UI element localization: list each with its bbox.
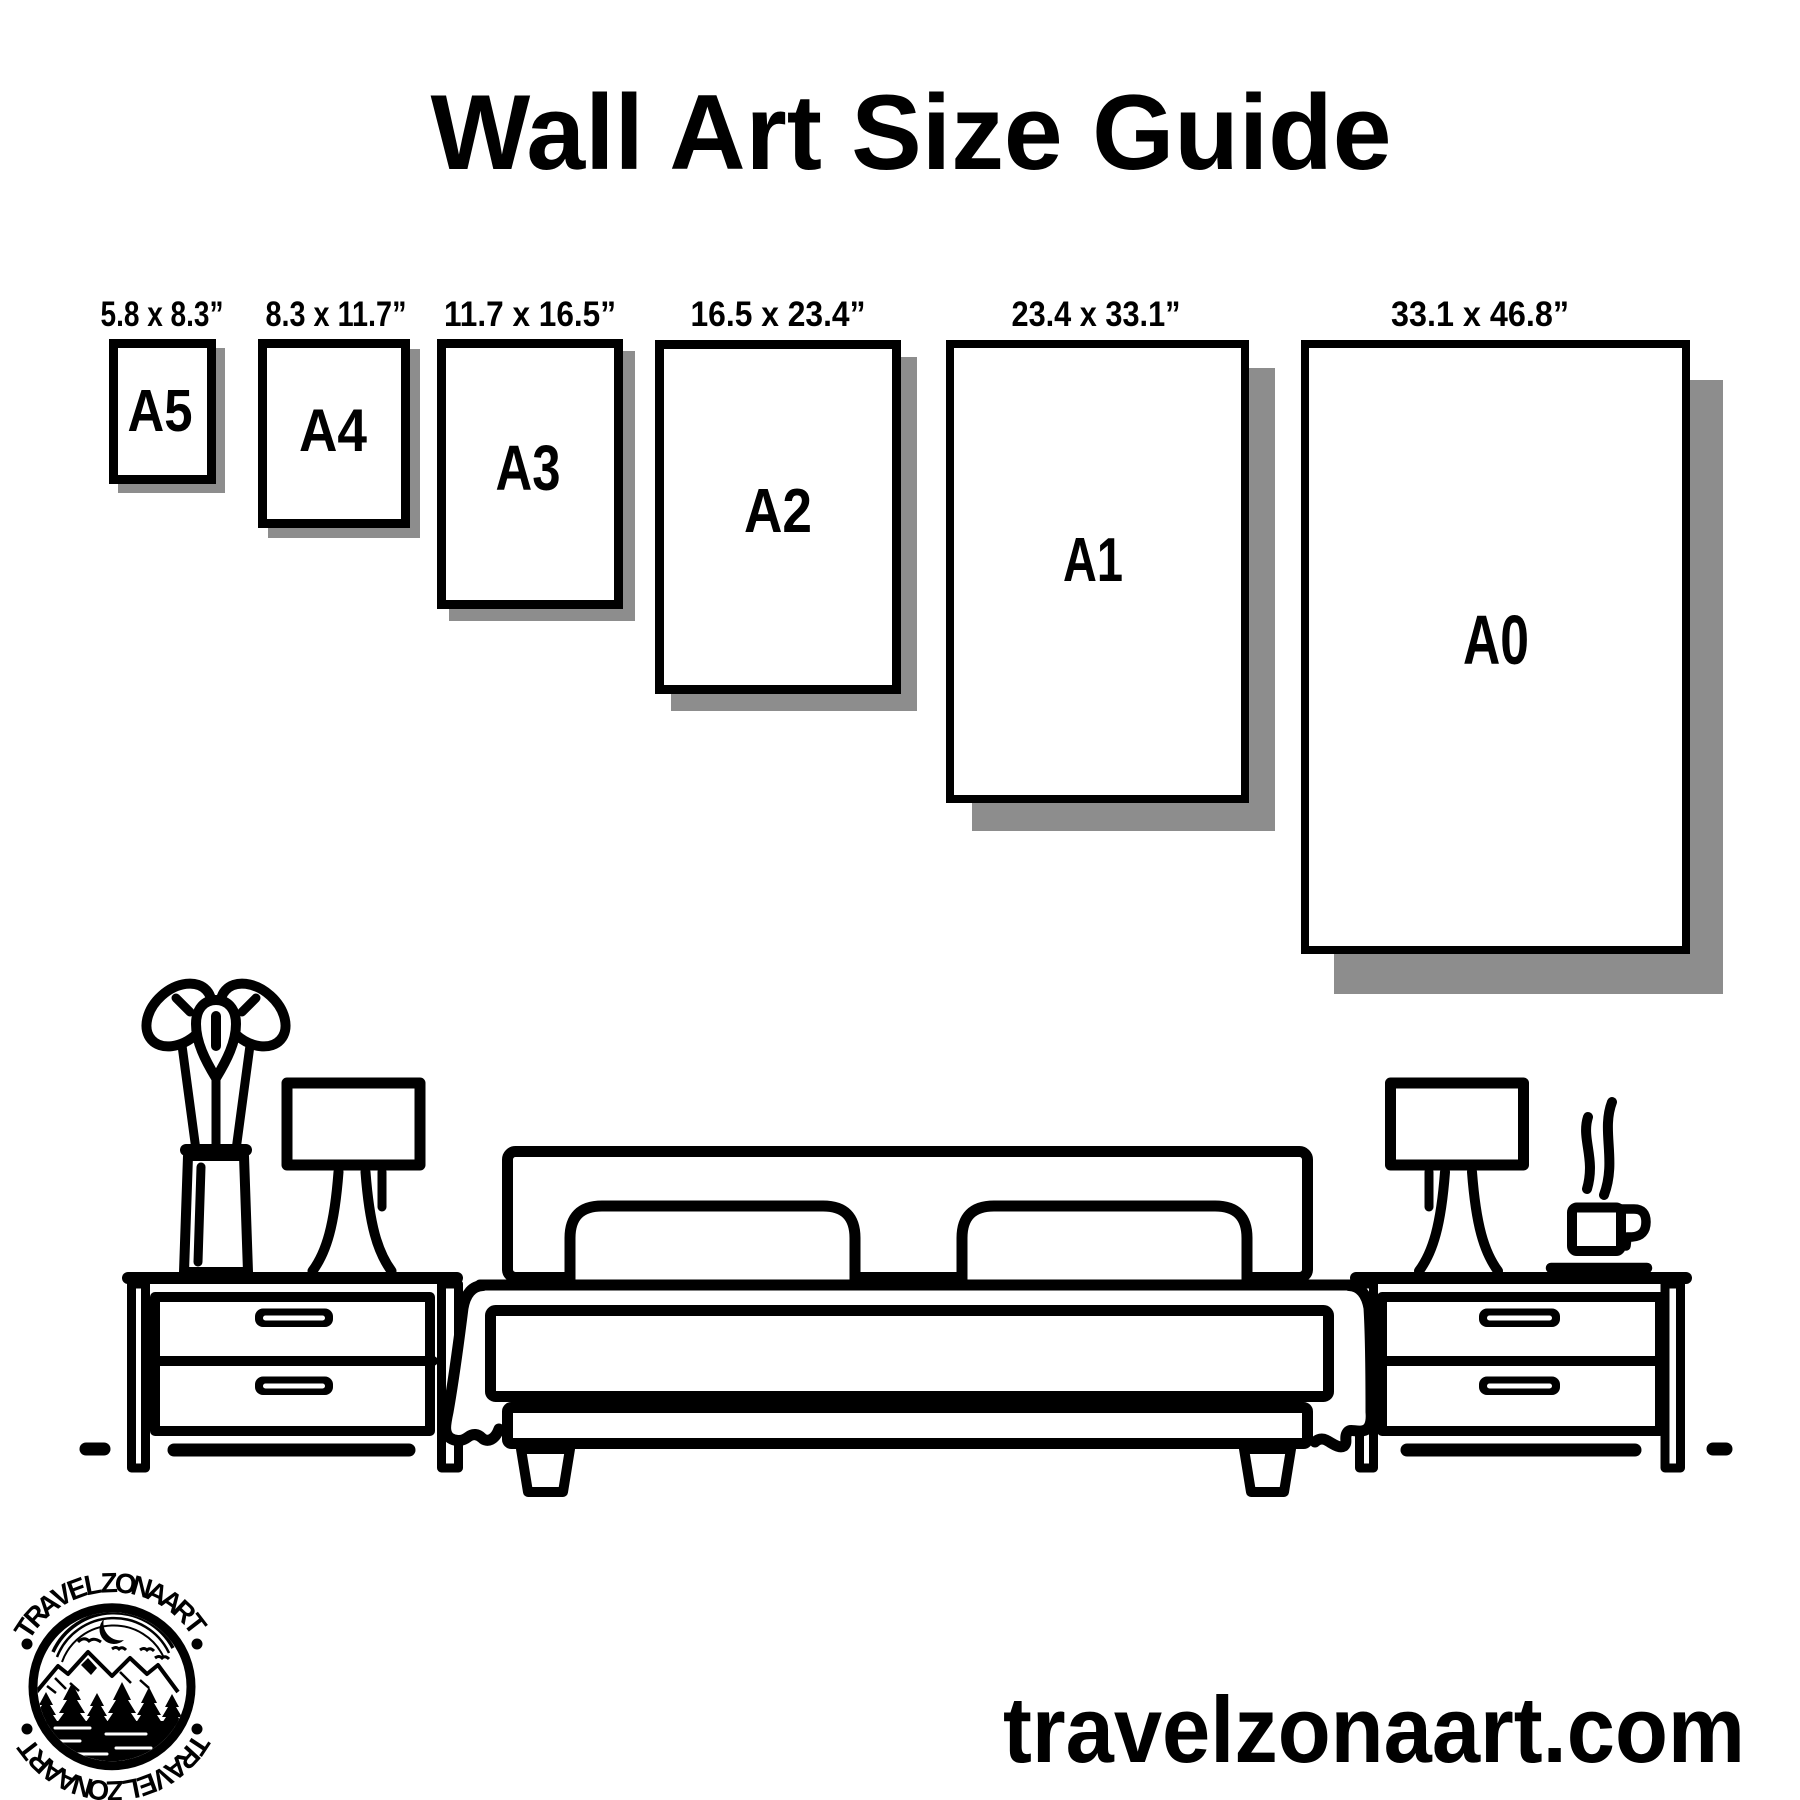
svg-text:33.1 x 46.8”: 33.1 x 46.8” xyxy=(1391,295,1569,334)
svg-text:A3: A3 xyxy=(496,432,561,504)
svg-text:travelzonaart.com: travelzonaart.com xyxy=(1003,1677,1745,1782)
svg-text:16.5 x 23.4”: 16.5 x 23.4” xyxy=(691,295,866,334)
svg-text:A0: A0 xyxy=(1463,601,1529,679)
svg-text:23.4 x 33.1”: 23.4 x 33.1” xyxy=(1012,295,1181,334)
svg-text:Wall Art Size Guide: Wall Art Size Guide xyxy=(431,72,1392,192)
svg-text:A5: A5 xyxy=(128,378,193,444)
svg-text:5.8 x 8.3”: 5.8 x 8.3” xyxy=(101,295,224,334)
svg-text:A4: A4 xyxy=(299,397,368,464)
svg-text:A1: A1 xyxy=(1063,526,1123,595)
svg-text:A2: A2 xyxy=(744,477,812,546)
svg-text:8.3 x 11.7”: 8.3 x 11.7” xyxy=(266,295,407,334)
svg-text:11.7 x 16.5”: 11.7 x 16.5” xyxy=(444,295,616,334)
